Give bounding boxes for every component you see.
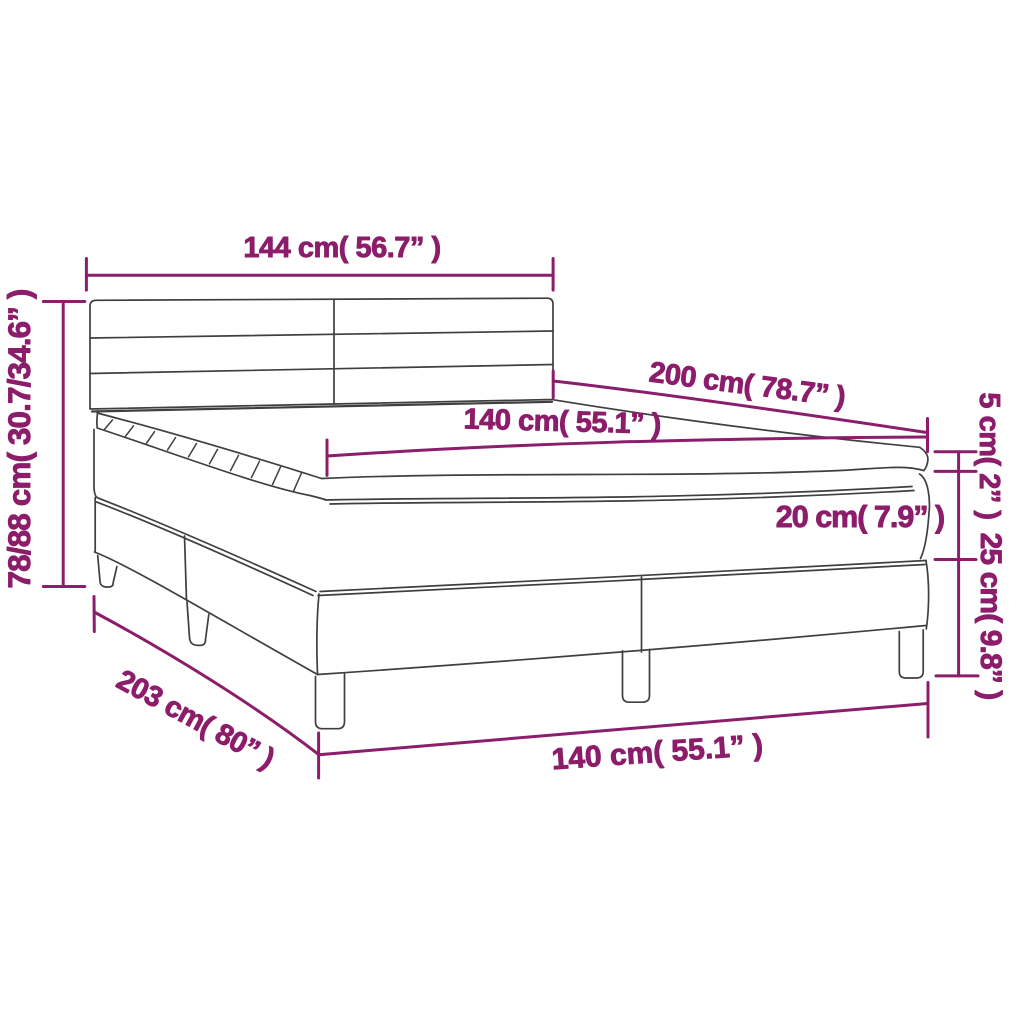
svg-text:140 cm( 55.1” ): 140 cm( 55.1” ): [463, 403, 661, 440]
svg-text:144 cm( 56.7” ): 144 cm( 56.7” ): [243, 232, 440, 264]
svg-text:203 cm( 80” ): 203 cm( 80” ): [111, 664, 279, 775]
svg-text:25 cm( 9.8” ): 25 cm( 9.8” ): [974, 533, 1007, 700]
svg-text:78/88 cm( 30.7/34.6” ): 78/88 cm( 30.7/34.6” ): [1, 290, 37, 589]
svg-text:20 cm( 7.9” ): 20 cm( 7.9” ): [776, 500, 944, 534]
svg-text:140 cm( 55.1” ): 140 cm( 55.1” ): [551, 729, 765, 777]
svg-text:5 cm( 2” ): 5 cm( 2” ): [973, 392, 1005, 519]
